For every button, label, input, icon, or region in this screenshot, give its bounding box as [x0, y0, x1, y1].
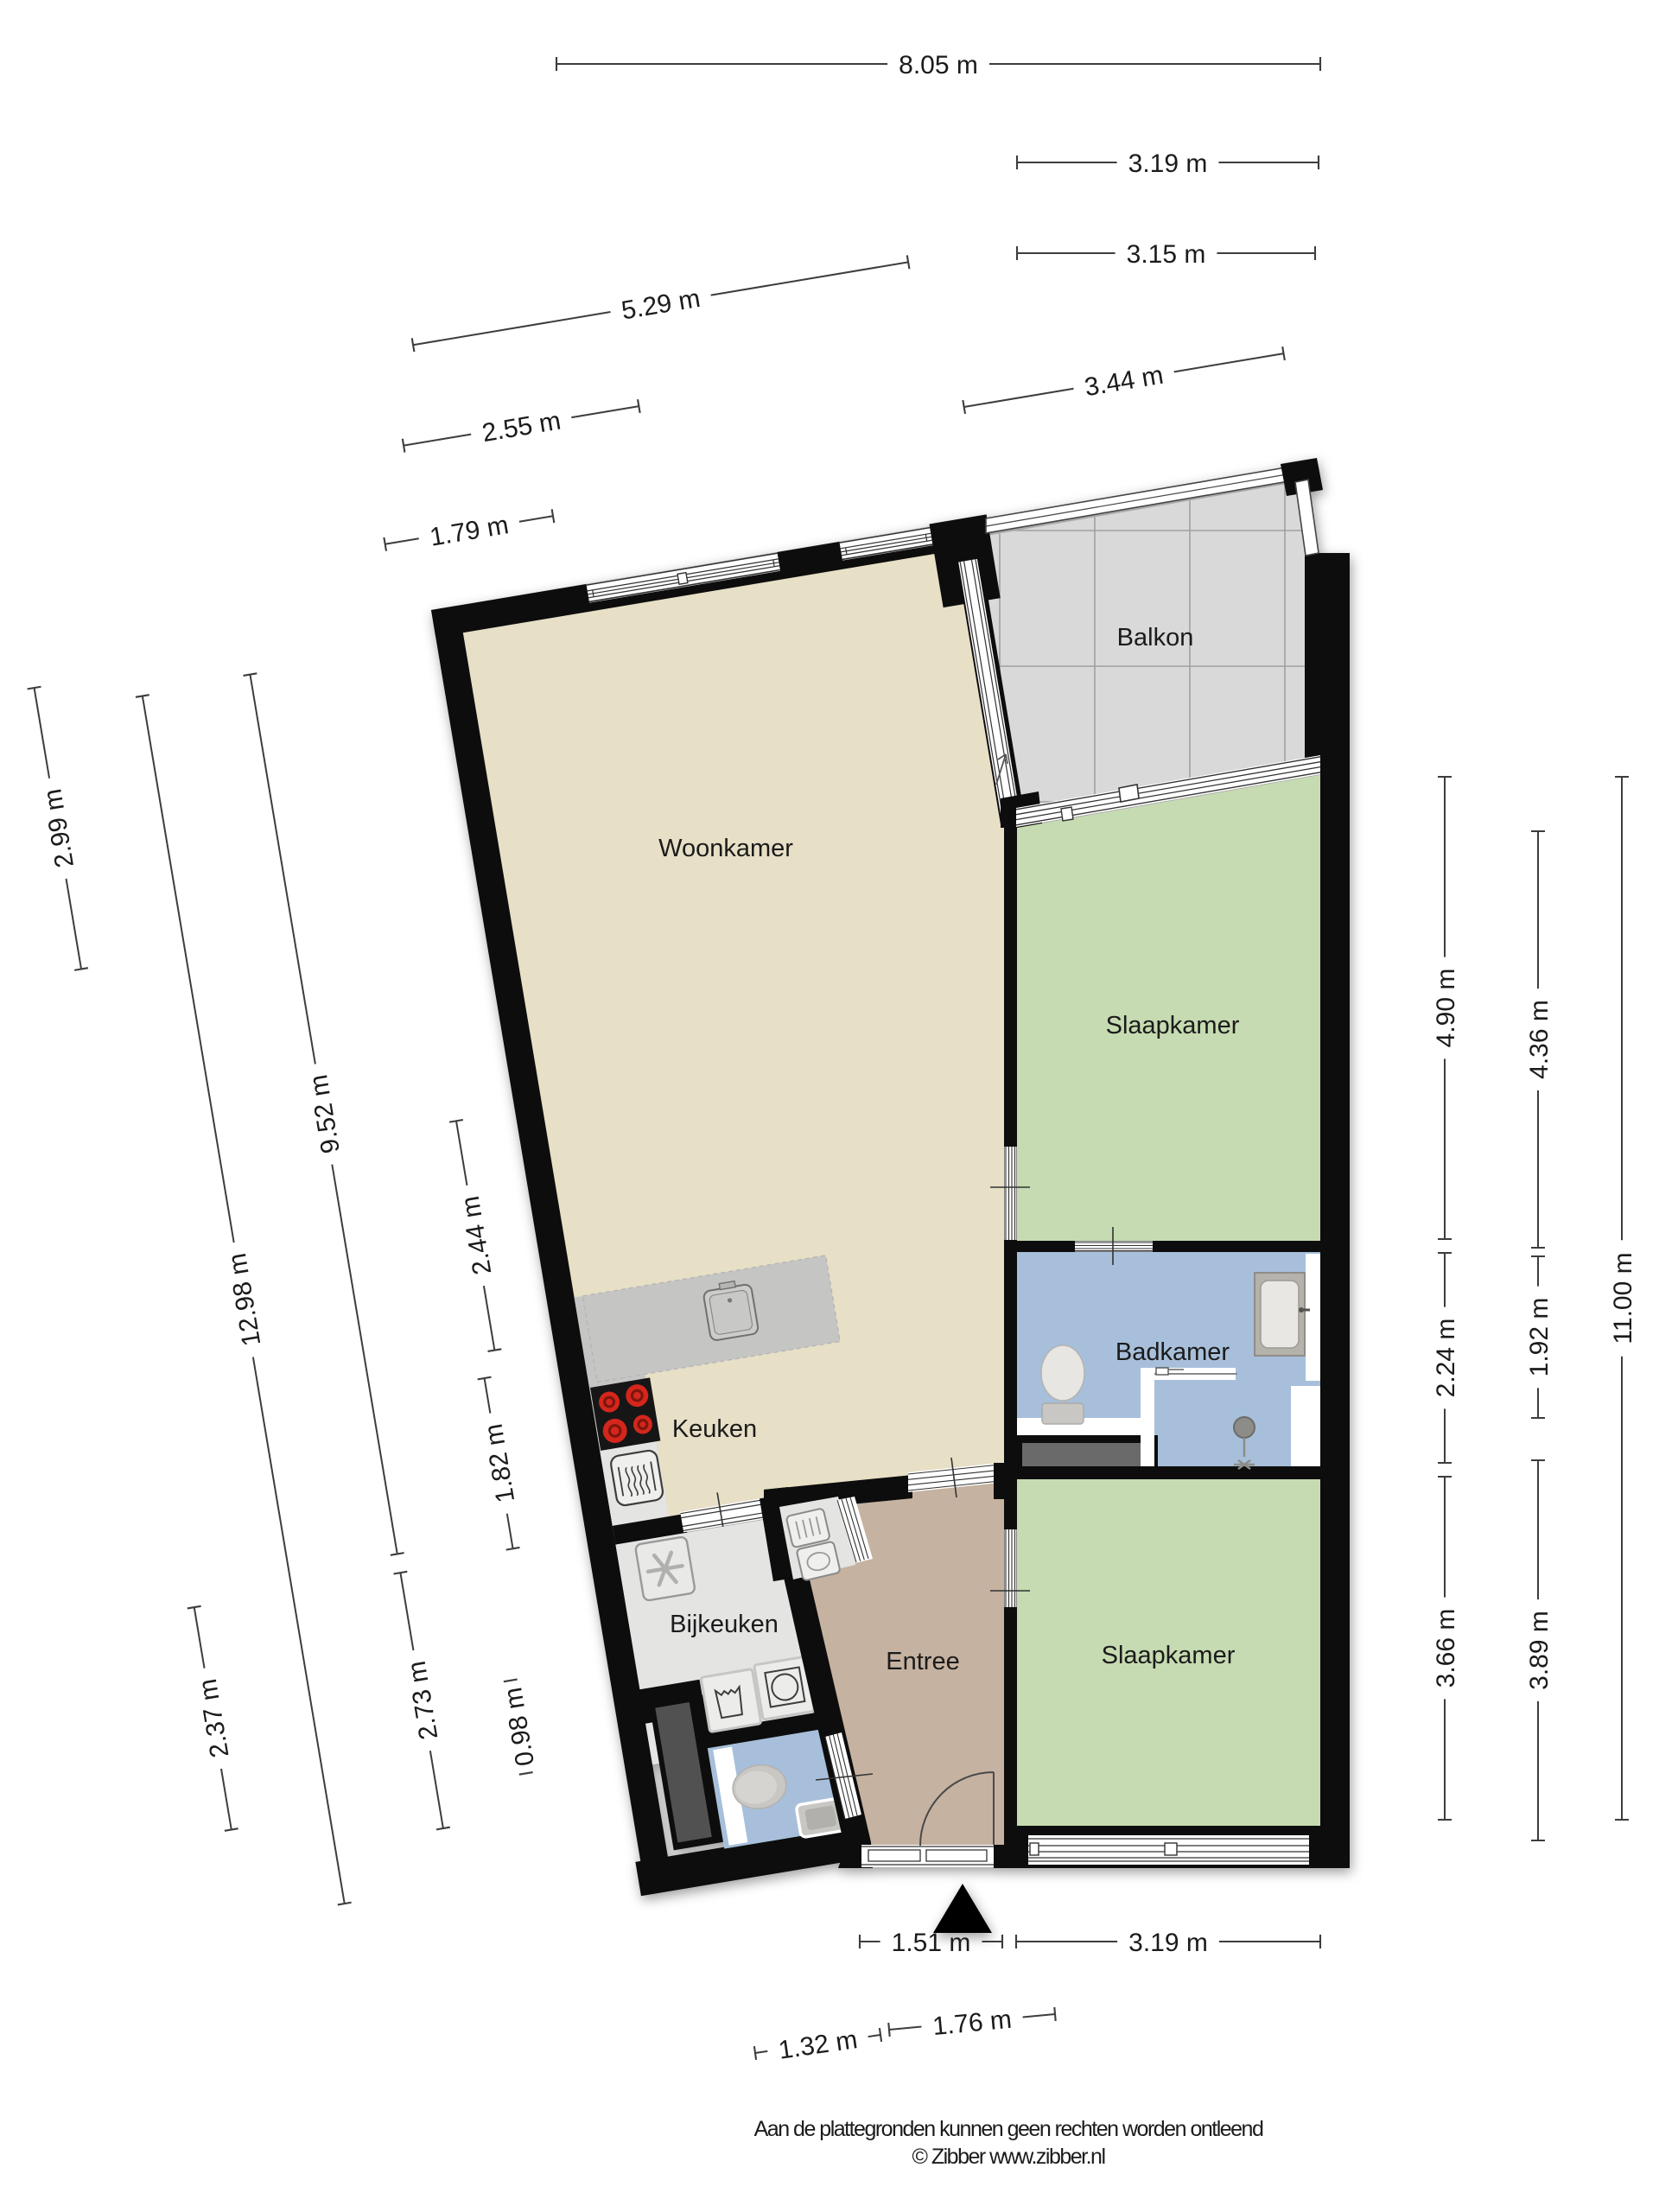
svg-text:Slaapkamer: Slaapkamer: [1106, 1012, 1240, 1039]
svg-text:3.89 m: 3.89 m: [1525, 1611, 1554, 1690]
svg-text:11.00 m: 11.00 m: [1609, 1252, 1637, 1344]
svg-text:3.15 m: 3.15 m: [1127, 240, 1206, 269]
svg-text:2.24 m: 2.24 m: [1432, 1319, 1460, 1398]
svg-text:Aan de plattegronden kunnen ge: Aan de plattegronden kunnen geen rechten…: [754, 2117, 1263, 2141]
svg-text:1.51 m: 1.51 m: [892, 1929, 971, 1957]
svg-text:4.90 m: 4.90 m: [1432, 969, 1460, 1048]
svg-text:1.92 m: 1.92 m: [1525, 1298, 1554, 1377]
svg-text:3.19 m: 3.19 m: [1128, 149, 1208, 178]
svg-text:3.19 m: 3.19 m: [1128, 1929, 1208, 1957]
svg-text:3.66 m: 3.66 m: [1432, 1609, 1460, 1688]
svg-text:Entree: Entree: [886, 1648, 959, 1675]
svg-text:© Zibber www.zibber.nl: © Zibber www.zibber.nl: [912, 2145, 1104, 2169]
svg-text:Badkamer: Badkamer: [1116, 1338, 1230, 1366]
svg-text:Balkon: Balkon: [1117, 624, 1194, 652]
svg-text:8.05 m: 8.05 m: [899, 51, 978, 79]
svg-text:Bijkeuken: Bijkeuken: [670, 1611, 779, 1638]
svg-text:4.36 m: 4.36 m: [1525, 1000, 1554, 1079]
svg-text:Keuken: Keuken: [672, 1415, 757, 1443]
svg-text:Woonkamer: Woonkamer: [658, 835, 793, 862]
svg-text:Slaapkamer: Slaapkamer: [1102, 1642, 1236, 1669]
